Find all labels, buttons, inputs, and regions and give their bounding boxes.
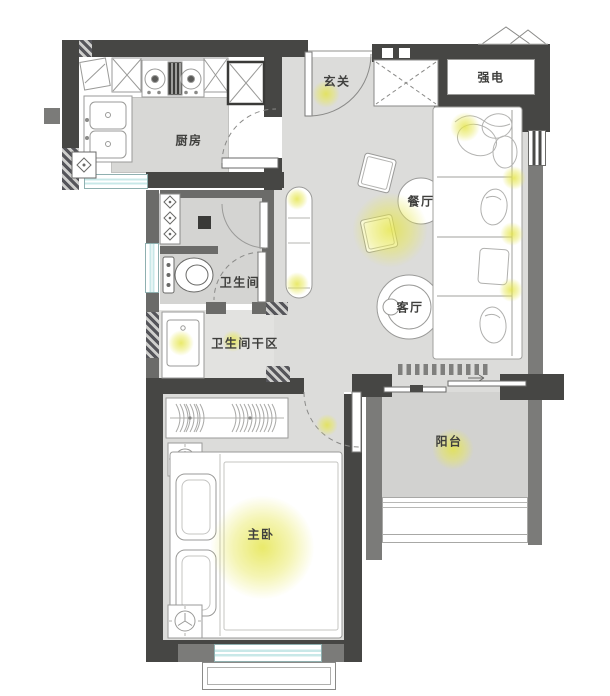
- entry-closet: [374, 60, 438, 106]
- louver-bars: [398, 364, 488, 375]
- entrance-label: 玄关: [323, 73, 350, 90]
- toilet: [163, 257, 213, 293]
- bedroom-door-light-glow: [316, 414, 338, 436]
- kitchen-label: 厨房: [175, 132, 202, 149]
- living-label: 客厅: [396, 299, 423, 316]
- balcony-sliding-door: [384, 375, 526, 392]
- kitchen-door: [222, 109, 278, 168]
- stove: [142, 60, 204, 97]
- sofa-light-glow-2: [500, 222, 524, 246]
- shower-drain: [198, 216, 211, 229]
- shower-door: [222, 202, 268, 248]
- sofa-light-glow-3: [499, 278, 523, 302]
- refrigerator: [228, 62, 264, 104]
- balcony-label: 阳台: [435, 433, 462, 450]
- master-bedroom-label: 主卧: [247, 526, 274, 543]
- wardrobe: [166, 398, 288, 438]
- plan-linework: [0, 0, 610, 696]
- sofa-light-glow-1: [502, 166, 526, 190]
- kitchen-corner-shelf: [80, 58, 110, 90]
- chaise-light-glow: [450, 112, 480, 142]
- electric-box-label: 强电: [477, 69, 504, 86]
- cabinet-light-glow-bottom: [285, 272, 309, 296]
- bathroom-label: 卫生间: [220, 274, 261, 291]
- dining-label: 餐厅: [407, 193, 434, 210]
- nightstand-lamp-bottom: [168, 605, 202, 638]
- cabinet-light-glow-top: [286, 188, 308, 210]
- dining-chair-1: [357, 153, 396, 194]
- vanity-light-glow: [168, 330, 194, 356]
- apartment-floor-plan: 玄关 强电 厨房 餐厅 客厅 卫生间 卫生间干区 主卧 阳台: [0, 0, 610, 696]
- pipe-shaft: [160, 194, 180, 244]
- kitchen-floor-drain: [72, 152, 96, 178]
- bathroom-dry-label: 卫生间干区: [211, 335, 279, 352]
- shaft-triangles: [478, 27, 548, 44]
- bed-light-glow: [210, 495, 315, 600]
